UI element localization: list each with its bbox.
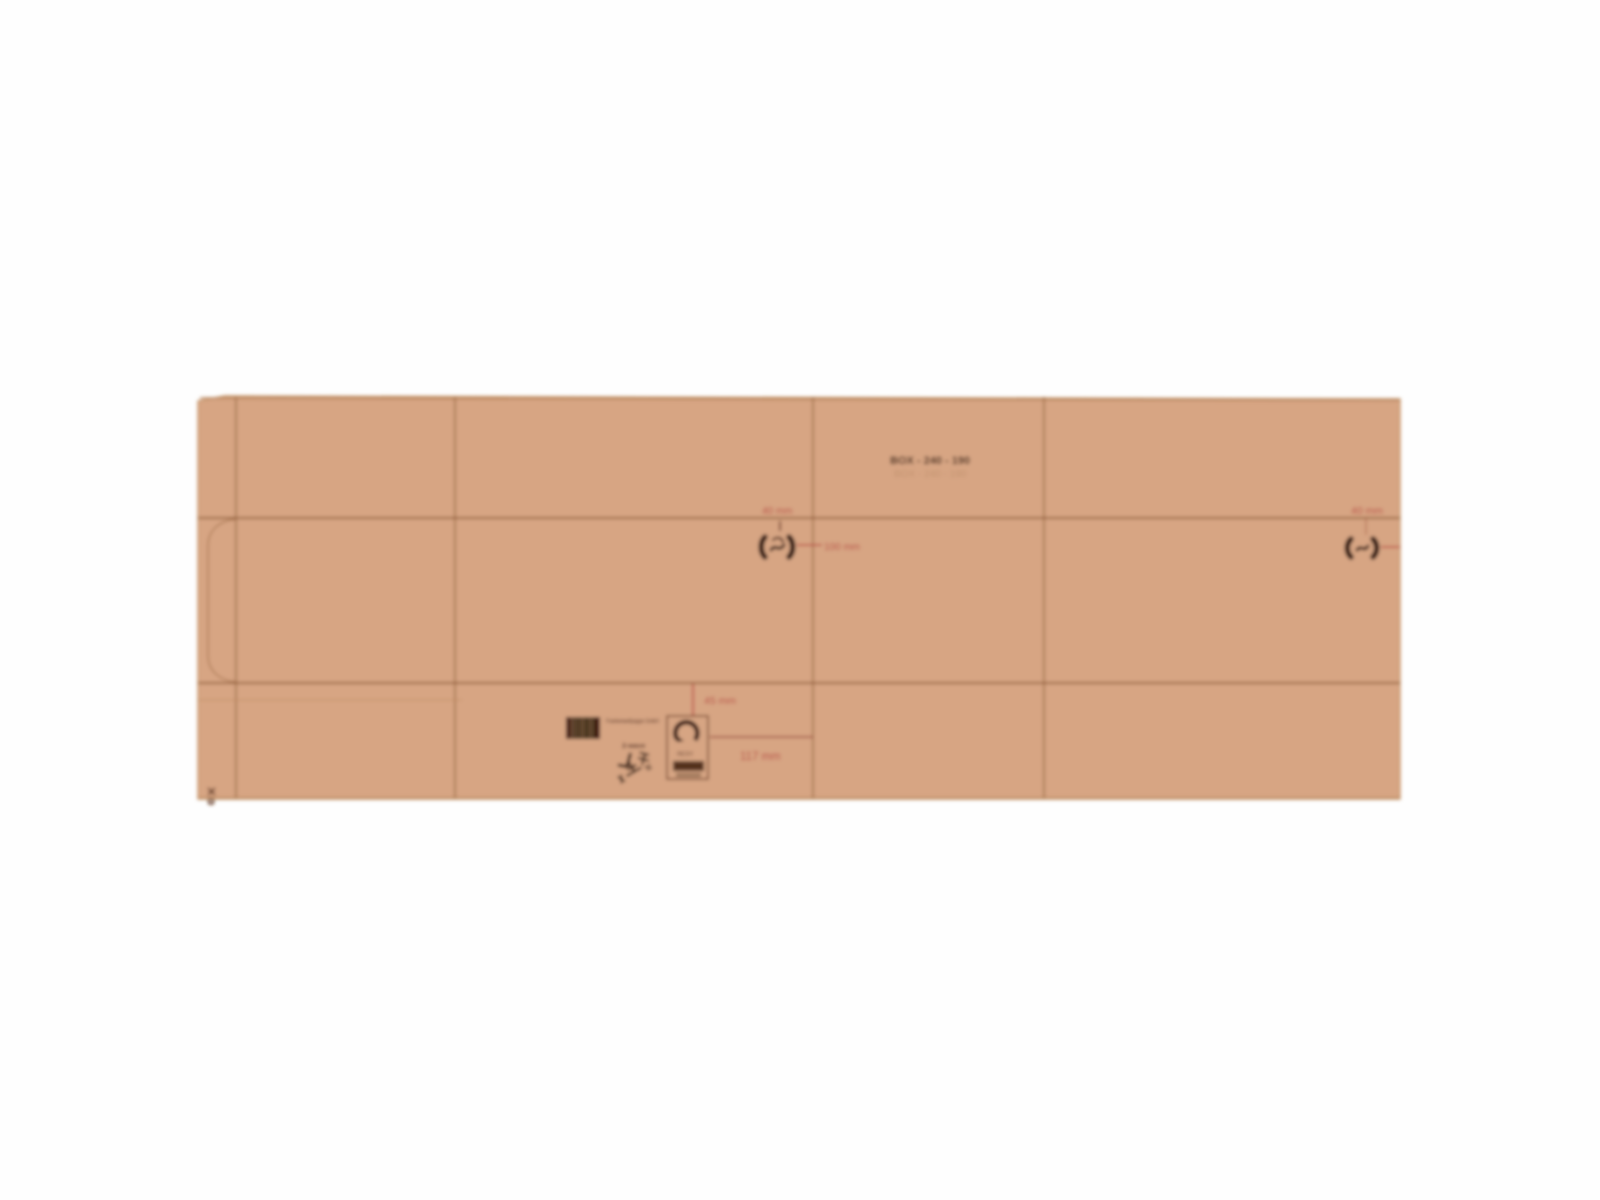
svg-text:RESY: RESY xyxy=(677,752,693,758)
svg-text:BOX - 240 - 190: BOX - 240 - 190 xyxy=(890,455,970,467)
svg-text:45 mm: 45 mm xyxy=(704,695,736,707)
svg-text:BOX - 240 - 190: BOX - 240 - 190 xyxy=(894,469,967,480)
svg-text:2-wave: 2-wave xyxy=(622,743,645,750)
svg-text:117 mm: 117 mm xyxy=(740,751,781,763)
svg-text:40 mm: 40 mm xyxy=(762,506,793,517)
svg-text:100 mm: 100 mm xyxy=(824,542,860,553)
svg-text:Frankenwellpappe GmbH: Frankenwellpappe GmbH xyxy=(606,718,659,725)
svg-text:40 mm: 40 mm xyxy=(1351,505,1383,517)
